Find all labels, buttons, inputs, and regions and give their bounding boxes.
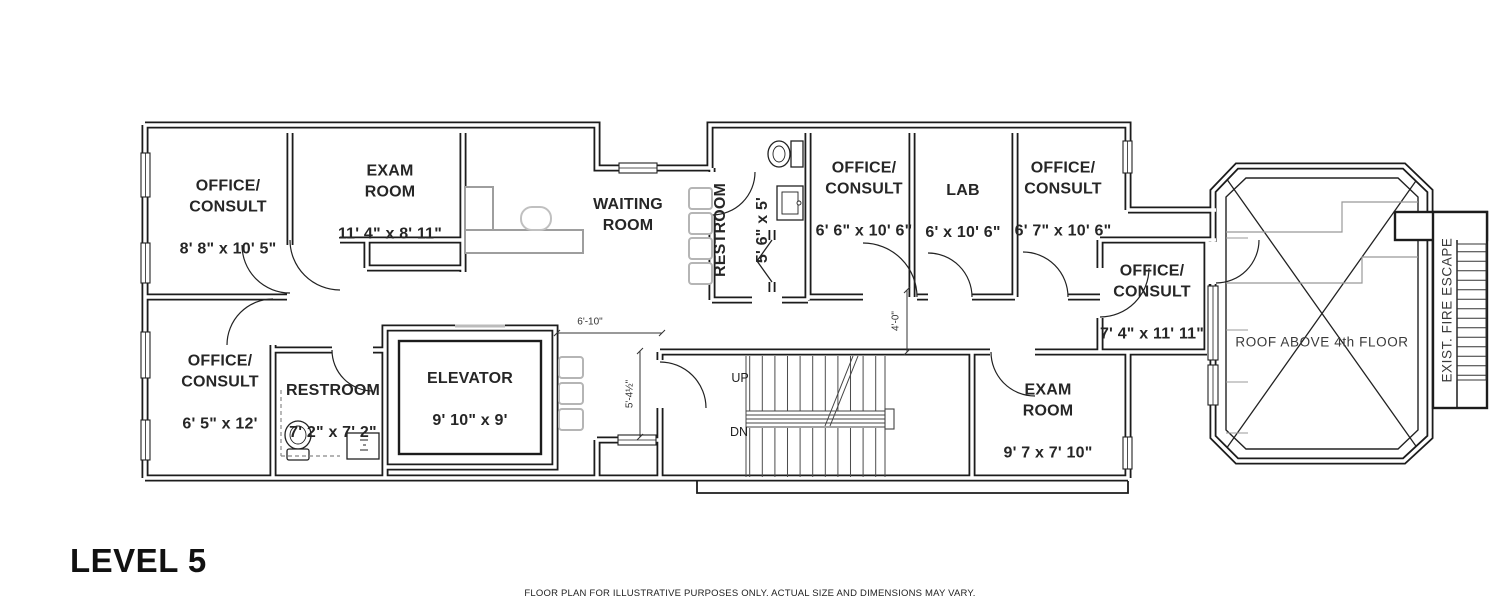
corridor-chair [559, 383, 583, 404]
room-name: ELEVATOR [427, 368, 513, 389]
stairs-up-label: UP [731, 371, 748, 385]
disclaimer-text: FLOOR PLAN FOR ILLUSTRATIVE PURPOSES ONL… [524, 588, 975, 599]
room-name: OFFICE/ CONSULT [181, 351, 259, 393]
fire-escape-ladder [1457, 244, 1486, 380]
dimension-4-0: 4'-0" [891, 311, 902, 331]
room-name: OFFICE/ CONSULT [1100, 261, 1204, 303]
dim-line-4-0 [904, 287, 910, 355]
dimension-6-10: 6'-10" [577, 317, 602, 328]
floor-plan-canvas: OFFICE/ CONSULT 8' 8" x 10' 5" EXAM ROOM… [0, 0, 1500, 616]
dim-line-6-10 [554, 330, 665, 336]
room-label-office-consult-2: OFFICE/ CONSULT 6' 6" x 10' 6" [816, 137, 913, 264]
room-dims: 7' 4" x 11' 11" [1100, 324, 1204, 345]
reception-counter-return [465, 187, 493, 230]
room-label-waiting-room: WAITING ROOM [593, 173, 663, 257]
room-name: RESTROOM [286, 380, 380, 401]
fire-escape-label: EXIST. FIRE ESCAPE [1440, 237, 1455, 382]
door-stairs [660, 362, 706, 408]
room-dims: 5' 6" x 5' [753, 183, 774, 277]
room-name: LAB [925, 180, 1000, 201]
room-label-office-consult-1: OFFICE/ CONSULT 8' 8" x 10' 5" [180, 155, 277, 282]
room-dims: 6' x 10' 6" [925, 223, 1000, 244]
roof-structure [1213, 166, 1430, 461]
room-label-elevator: ELEVATOR 9' 10" x 9' [427, 347, 513, 453]
room-dims: 6' 5" x 12' [181, 414, 259, 435]
toilet-tank-restroom1 [791, 141, 803, 167]
room-dims: 7' 2" x 7' 2" [286, 423, 380, 444]
room-label-exam-room-1: EXAM ROOM 11' 4" x 8' 11" [338, 140, 442, 267]
roof-door-opening [1206, 242, 1220, 284]
room-name: OFFICE/ CONSULT [1015, 158, 1112, 200]
stair-flight-down [746, 428, 885, 477]
room-name: WAITING ROOM [593, 194, 663, 236]
room-label-office-consult-5: OFFICE/ CONSULT 6' 5" x 12' [181, 330, 259, 457]
door-exam1 [290, 240, 340, 290]
room-dims: 6' 6" x 10' 6" [816, 221, 913, 242]
room-dims: 9' 10" x 9' [427, 411, 513, 432]
room-dims: 6' 7" x 10' 6" [1015, 221, 1112, 242]
corridor-chair [559, 357, 583, 378]
room-label-office-consult-3: OFFICE/ CONSULT 6' 7" x 10' 6" [1015, 137, 1112, 264]
room-dims: 8' 8" x 10' 5" [180, 239, 277, 260]
stairs-down-label: DN [730, 425, 748, 439]
stair-flight-up [746, 356, 885, 411]
corridor-chair [559, 409, 583, 430]
room-label-restroom-1: RESTROOM 5' 6" x 5' [689, 183, 795, 277]
dimension-5-4-half: 5'-4½" [625, 380, 636, 408]
room-dims: 11' 4" x 8' 11" [338, 224, 442, 245]
room-dims: 9' 7 x 7' 10" [1004, 443, 1093, 464]
room-label-exam-room-2: EXAM ROOM 9' 7 x 7' 10" [1004, 359, 1093, 486]
room-name: OFFICE/ CONSULT [816, 158, 913, 200]
room-label-restroom-2: RESTROOM 7' 2" x 7' 2" [286, 359, 380, 465]
reception-counter [465, 230, 583, 253]
reception-stool [521, 207, 551, 230]
roof-above-label: ROOF ABOVE 4th FLOOR [1235, 335, 1408, 350]
stairs [746, 356, 894, 477]
room-label-lab: LAB 6' x 10' 6" [925, 159, 1000, 265]
dim-line-5-4 [637, 348, 643, 440]
room-name: EXAM ROOM [338, 161, 442, 203]
room-label-office-consult-4: OFFICE/ CONSULT 7' 4" x 11' 11" [1100, 240, 1204, 367]
stair-landing [746, 411, 892, 427]
room-name: OFFICE/ CONSULT [180, 176, 277, 218]
floor-title: LEVEL 5 [70, 542, 207, 580]
room-name: RESTROOM [710, 183, 731, 277]
floor-plan-drawing [0, 0, 1500, 616]
room-name: EXAM ROOM [1004, 380, 1093, 422]
